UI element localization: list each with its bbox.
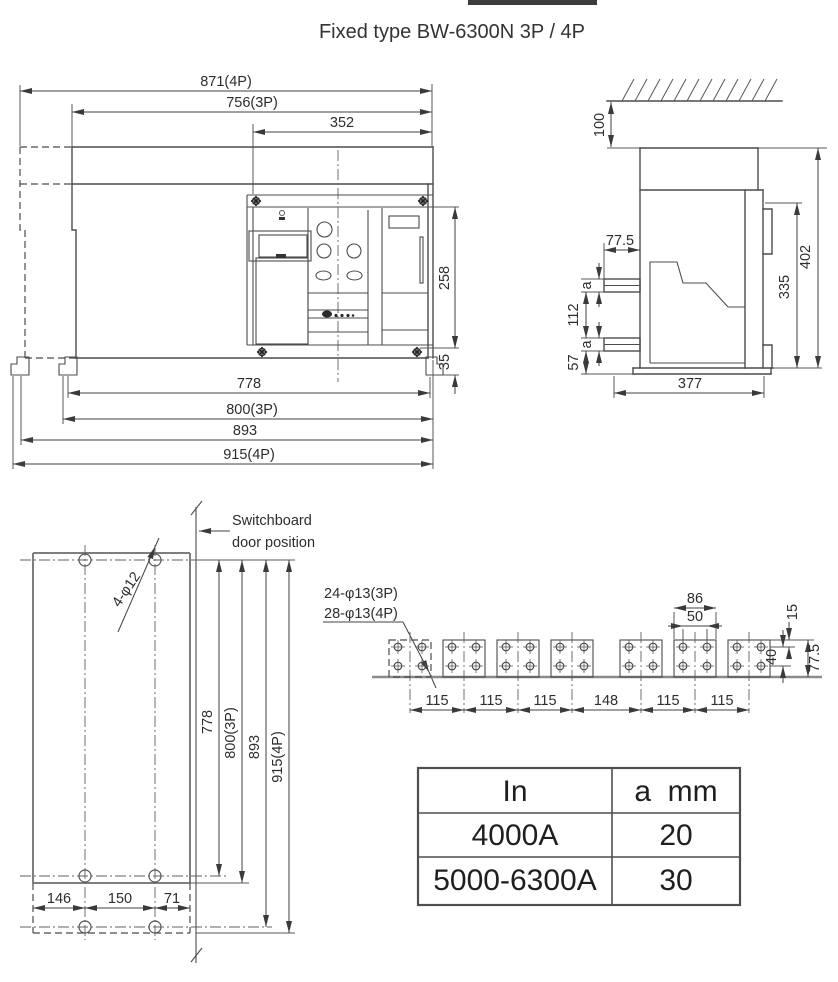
dim-402-label: 402 xyxy=(798,245,814,269)
off-button-icon xyxy=(347,244,361,258)
busbar-holes-4p-label: 28-φ13(4P) xyxy=(324,606,398,622)
dim-pitch-5: 115 xyxy=(656,693,679,709)
busbar-holes-3p-label: 24-φ13(3P) xyxy=(324,586,398,602)
dim-893-label: 893 xyxy=(233,423,257,439)
front-view-outline xyxy=(11,147,443,375)
indicator-window-icon xyxy=(347,271,362,280)
dim-15-label: 15 xyxy=(785,604,801,620)
dim-871-4p-label: 871(4P) xyxy=(200,74,252,90)
dim-71-label: 71 xyxy=(164,891,180,907)
dim-77-5-busbar-label: 77.5 xyxy=(807,644,823,672)
dim-915-plate-label: 915(4P) xyxy=(270,731,286,783)
front-view: 871(4P) 756(3P) 352 xyxy=(11,74,459,469)
page-top-bar xyxy=(468,0,597,5)
spec-table: In a mm 4000A 20 5000-6300A 30 xyxy=(418,768,740,905)
on-button-icon xyxy=(317,244,331,258)
dim-35-label: 35 xyxy=(437,354,453,370)
mounting-bottom-dims: 146 150 71 xyxy=(33,891,190,908)
dim-778-plate-label: 778 xyxy=(200,710,216,734)
dim-258-label: 258 xyxy=(437,266,453,290)
mounting-vertical-dims: 778 800(3P) 893 915(4P) xyxy=(200,560,289,933)
busbar-tab xyxy=(728,632,770,713)
table-cell-in-5000-6300: 5000-6300A xyxy=(433,864,596,897)
door-position-label-1: Switchboard xyxy=(232,513,312,529)
front-panel xyxy=(247,150,433,382)
indicator-window-icon xyxy=(316,271,331,280)
mounting-view: Switchboard door position 4-φ12 778 xyxy=(20,501,315,963)
charge-handle-icon xyxy=(317,222,332,237)
dim-50-label: 50 xyxy=(687,609,703,625)
page-title: Fixed type BW-6300N 3P / 4P xyxy=(319,21,585,43)
busbar-view: 24-φ13(3P) 28-φ13(4P) 115 115 115 xyxy=(323,586,823,713)
nameplate xyxy=(389,216,419,228)
dim-335-label: 335 xyxy=(777,275,793,299)
dim-150-label: 150 xyxy=(108,891,132,907)
dim-a-lower-label: a xyxy=(579,340,595,349)
busbar-tab xyxy=(551,632,593,713)
dim-893-plate-label: 893 xyxy=(247,735,263,759)
dim-352-label: 352 xyxy=(330,115,354,131)
dim-40-label: 40 xyxy=(764,649,780,665)
side-view-outline xyxy=(604,148,827,374)
dim-pitch-2: 115 xyxy=(479,693,502,709)
dim-pitch-6: 115 xyxy=(710,693,733,709)
busbar-pitch-dims: 115 115 115 148 115 115 xyxy=(410,693,749,710)
table-cell-a-30: 30 xyxy=(659,864,692,897)
technical-drawing: Fixed type BW-6300N 3P / 4P 871(4P) 756(… xyxy=(0,0,838,982)
mount-bolt-icon xyxy=(418,196,428,206)
dim-377-label: 377 xyxy=(678,376,702,392)
table-header-in: In xyxy=(502,775,527,808)
dim-100-label: 100 xyxy=(592,113,608,137)
mount-bolt-icon xyxy=(251,196,261,206)
dim-146-label: 146 xyxy=(47,891,71,907)
dim-pitch-4: 148 xyxy=(594,693,618,709)
dim-800-plate-label: 800(3P) xyxy=(223,707,239,759)
table-header-a-mm: a mm xyxy=(634,775,717,808)
mount-bolt-icon xyxy=(257,347,267,357)
dim-915-4p-label: 915(4P) xyxy=(223,447,275,463)
table-cell-in-4000: 4000A xyxy=(472,819,559,852)
dim-pitch-3: 115 xyxy=(533,693,556,709)
front-view-dimensions: 871(4P) 756(3P) 352 xyxy=(20,74,432,194)
ceiling-hatch xyxy=(607,79,782,101)
dim-pitch-1: 115 xyxy=(425,693,448,709)
drawing-sheet: Fixed type BW-6300N 3P / 4P 871(4P) 756(… xyxy=(0,0,838,982)
dim-778-label: 778 xyxy=(237,376,261,392)
busbar-right-dims: 15 40 77.5 xyxy=(764,604,823,683)
front-view-bottom-dims: 778 800(3P) 893 915(4P) xyxy=(13,360,433,469)
side-view-right-dims: 335 402 377 xyxy=(614,148,822,398)
side-view: 100 77.5 xyxy=(566,79,827,398)
dim-57-label: 57 xyxy=(566,354,582,370)
side-view-left-dims: 77.5 a 112 a 57 xyxy=(566,233,640,374)
dim-800-3p-label: 800(3P) xyxy=(226,402,278,418)
dim-77-5-side-label: 77.5 xyxy=(606,233,634,249)
table-cell-a-20: 20 xyxy=(659,819,692,852)
dim-112-label: 112 xyxy=(566,303,582,326)
dim-4-phi12-label: 4-φ12 xyxy=(109,569,144,610)
dim-a-upper-label: a xyxy=(579,281,595,290)
dim-86-label: 86 xyxy=(687,591,703,607)
door-position-label-2: door position xyxy=(232,535,315,551)
dim-756-3p-label: 756(3P) xyxy=(226,95,278,111)
